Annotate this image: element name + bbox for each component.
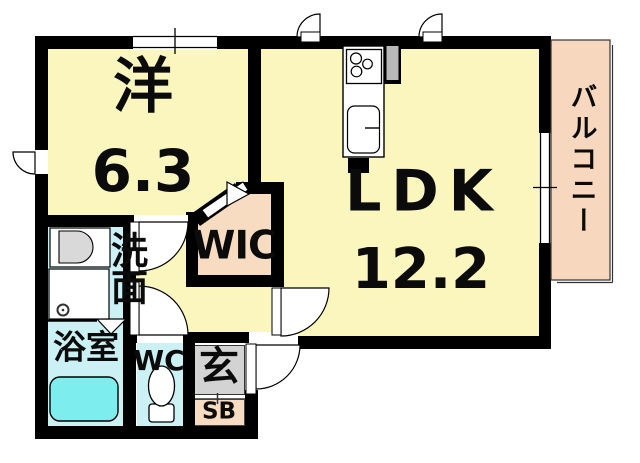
wall: [186, 275, 284, 287]
wall: [248, 49, 261, 192]
wall: [298, 336, 551, 349]
bedroom-label: 洋: [113, 57, 173, 117]
left-vent-swing-icon: [13, 152, 35, 174]
entrance-doorway: [249, 332, 298, 349]
entrance-door-swing-icon: [256, 345, 300, 389]
wall: [35, 36, 551, 49]
wall: [35, 36, 48, 150]
ldk-label: LDK: [345, 164, 503, 221]
wall: [539, 36, 551, 133]
bedroom-size: 6.3: [92, 142, 195, 200]
left-vent-opening: [35, 150, 48, 174]
balcony-window: [539, 133, 551, 243]
entrance-label: 玄: [199, 347, 239, 387]
wall: [183, 332, 195, 426]
wall: [35, 215, 134, 227]
wall: [35, 174, 48, 439]
ldk-size: 12.2: [352, 242, 490, 298]
wic-label: WIC: [192, 227, 275, 266]
kitchen-pillar: [384, 42, 401, 84]
wc-doorway: [137, 332, 183, 343]
bedroom-window: [133, 32, 217, 50]
floorplan: 洋 6.3 LDK 12.2 WIC 洗面 浴室 WC 玄 SB バルコニー: [0, 0, 640, 463]
balcony-label: バルコニー: [568, 83, 595, 238]
wall: [245, 390, 258, 439]
wall: [539, 243, 551, 349]
washroom-label: 洗面: [108, 231, 145, 305]
bedroom-doorway: [134, 215, 188, 227]
shoebox-label: SB: [202, 401, 236, 424]
wc-label: WC: [133, 347, 184, 375]
wall: [35, 426, 258, 439]
top-vent-swing-icon: [419, 14, 442, 37]
top-vent-swing-icon: [297, 14, 320, 37]
bathroom-label: 浴室: [53, 331, 119, 364]
